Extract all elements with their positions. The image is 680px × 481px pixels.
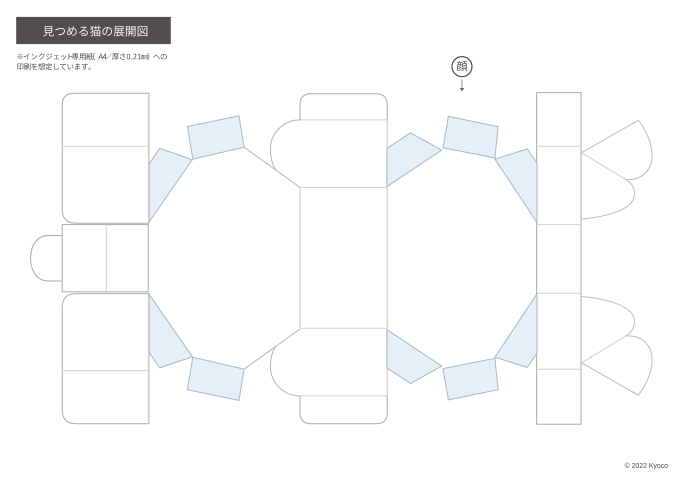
svg-text:© 2022 Kyoco: © 2022 Kyoco xyxy=(625,462,669,470)
